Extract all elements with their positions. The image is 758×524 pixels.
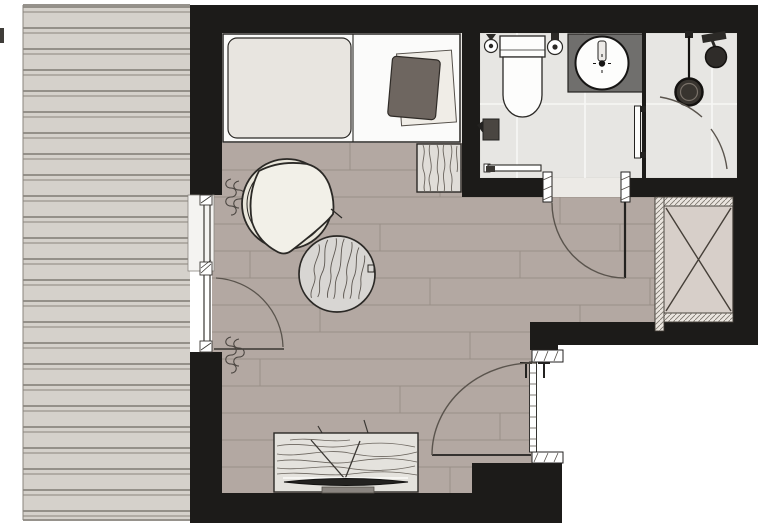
floor-plan (0, 0, 758, 524)
floor-plan-canvas (0, 0, 758, 524)
wall-bottom-step (472, 463, 562, 493)
duvet (228, 38, 351, 138)
wall-left-upper (190, 5, 222, 195)
wall-bath-bottom-left (480, 178, 543, 197)
foot-bench (417, 144, 461, 192)
entrance-door-threshold (530, 362, 537, 452)
wall-right-mid (733, 178, 758, 345)
faucet (598, 41, 606, 61)
washbasin-vanity (568, 34, 645, 92)
double-bed (223, 34, 460, 142)
towel-rail (484, 164, 541, 172)
pillow (387, 56, 440, 120)
wooden-side-stool (299, 234, 375, 312)
bathroom-door-threshold (552, 178, 621, 197)
tv-stand (322, 487, 374, 493)
wall-bottom (190, 493, 562, 523)
toilet (500, 36, 545, 117)
wall-top (190, 5, 758, 33)
wardrobe[interactable] (655, 197, 733, 331)
terrace-edge-mark (0, 28, 4, 43)
wall-bed-bath-divider (462, 33, 480, 197)
terrace (0, 0, 190, 524)
terrace-decking (23, 4, 190, 521)
wall-entrance-corner (530, 322, 558, 350)
wall-right-upper (737, 5, 758, 178)
wall-below-wardrobe (537, 322, 758, 345)
